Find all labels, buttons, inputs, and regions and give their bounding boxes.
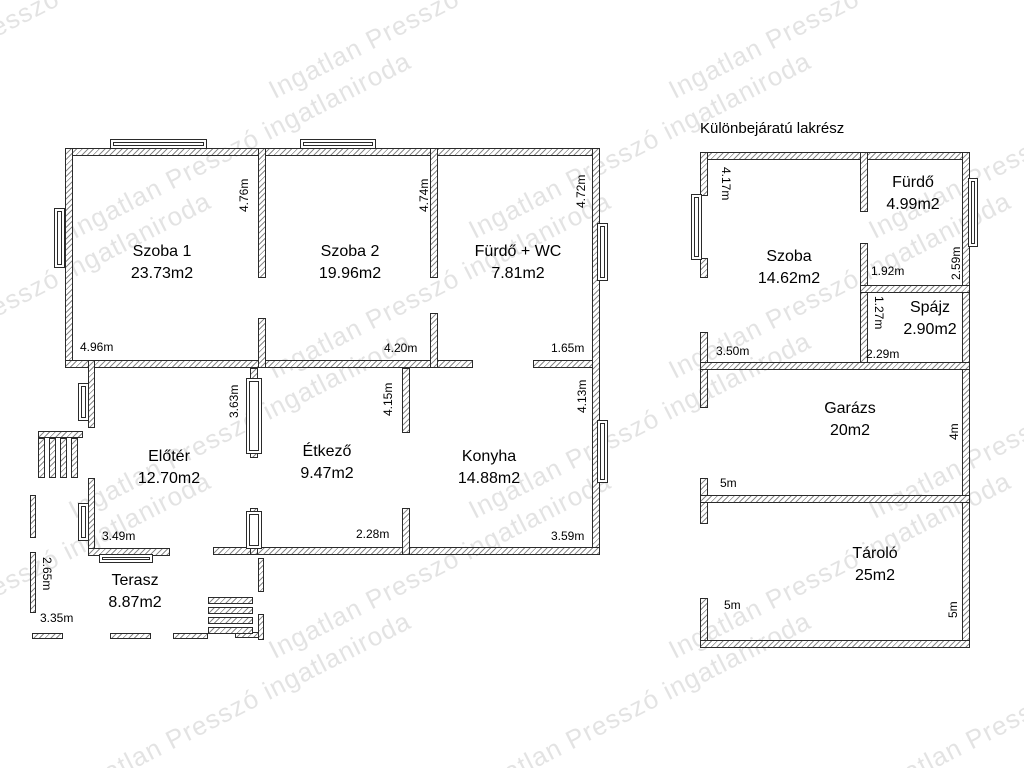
wall-etkezo-konyha-upper: [402, 368, 410, 433]
entry-stairs-cap: [38, 431, 83, 438]
dim-label: 4.20m: [384, 341, 417, 355]
room-name: Garázs: [770, 398, 930, 420]
room-name: Szoba: [709, 246, 869, 268]
window-furdowc-right: [597, 223, 608, 281]
wall-furdo-spajz: [860, 285, 970, 293]
entry-stairs-step: [60, 438, 67, 478]
room-label-annex-furdo: Fürdő 4.99m2: [833, 172, 993, 215]
room-name: Konyha: [409, 446, 569, 468]
terasz-edge-bottom: [110, 633, 151, 639]
room-label-terasz: Terasz 8.87m2: [55, 570, 215, 613]
terasz-stairs-step: [208, 627, 253, 634]
room-label-etkezo: Étkező 9.47m2: [247, 441, 407, 484]
terasz-edge-left-lower: [30, 552, 36, 613]
dim-label: 4.72m: [574, 175, 588, 208]
wall-eloter-left-upper: [88, 360, 95, 428]
dim-label: 1.27m: [872, 296, 886, 329]
terasz-edge-bottom: [173, 633, 208, 639]
window-szoba1-top: [110, 139, 207, 149]
floor-plan: Ingatlan Presszó ingatlanirodaIngatlan P…: [0, 0, 1024, 768]
annex-title: Különbejáratú lakrész: [700, 120, 844, 137]
dim-label: 3.35m: [40, 611, 73, 625]
window-eloter-left-upper: [78, 383, 89, 421]
room-label-szoba1: Szoba 1 23.73m2: [82, 241, 242, 284]
plan-layer: Különbejáratú lakrész Szoba 1 23.73m2 Sz…: [0, 0, 1024, 768]
dim-label: 1.65m: [551, 341, 584, 355]
dim-label: 3.49m: [102, 529, 135, 543]
window-etkezo-wall-lower: [246, 511, 262, 549]
wall-szoba1-szoba2-upper: [258, 148, 266, 278]
room-area: 14.62m2: [709, 268, 869, 290]
wall-szoba2-furdo-lower: [430, 313, 438, 368]
window-annex-szoba-left: [691, 194, 702, 260]
dim-label: 5m: [720, 476, 737, 490]
wall-main-top: [65, 148, 600, 156]
wall-main-right: [592, 148, 600, 555]
dim-label: 4.17m: [719, 167, 733, 200]
room-label-garazs: Garázs 20m2: [770, 398, 930, 441]
dim-label: 2.65m: [40, 557, 54, 590]
dim-label: 4.74m: [417, 179, 431, 212]
room-label-eloter: Előtér 12.70m2: [89, 446, 249, 489]
wall-etkezo-konyha-lower: [402, 508, 410, 555]
window-szoba1-left: [54, 208, 65, 268]
wall-annex-left-a: [700, 152, 708, 196]
room-area: 23.73m2: [82, 263, 242, 285]
entry-stairs-step: [49, 438, 56, 478]
wall-annex-left-c: [700, 332, 708, 408]
room-area: 25m2: [795, 565, 955, 587]
room-name: Előtér: [89, 446, 249, 468]
wall-annex-left-b: [700, 258, 708, 278]
wall-main-left-upper: [65, 148, 73, 368]
entry-stairs-step: [38, 438, 45, 478]
dim-label: 3.50m: [716, 344, 749, 358]
room-name: Fürdő + WC: [438, 241, 598, 263]
dim-label: 2.59m: [949, 247, 963, 280]
wall-annex-divider-garazs: [700, 362, 970, 370]
wall-main-middle-b: [533, 360, 600, 368]
dim-label: 4.13m: [575, 380, 589, 413]
room-area: 7.81m2: [438, 263, 598, 285]
room-label-konyha: Konyha 14.88m2: [409, 446, 569, 489]
dim-label: 4.15m: [381, 383, 395, 416]
room-label-szoba2: Szoba 2 19.96m2: [270, 241, 430, 284]
dim-label: 5m: [946, 601, 960, 618]
dim-label: 4.96m: [80, 340, 113, 354]
dim-label: 3.63m: [227, 385, 241, 418]
entry-stairs-step: [71, 438, 78, 478]
window-szoba2-top: [300, 139, 376, 149]
terasz-stairs-step: [208, 617, 253, 624]
dim-label: 4m: [947, 423, 961, 440]
room-name: Terasz: [55, 570, 215, 592]
wall-eloter-left-lower: [88, 478, 95, 556]
wall-garazs-tarolo: [700, 495, 970, 503]
window-eloter-bottom: [99, 554, 153, 563]
room-area: 14.88m2: [409, 468, 569, 490]
window-konyha-right: [597, 420, 608, 483]
room-area: 9.47m2: [247, 463, 407, 485]
dim-label: 5m: [724, 598, 741, 612]
terasz-edge-bottom: [32, 633, 63, 639]
room-name: Tároló: [795, 543, 955, 565]
room-label-furdo-wc: Fürdő + WC 7.81m2: [438, 241, 598, 284]
dim-label: 4.76m: [237, 179, 251, 212]
room-area: 12.70m2: [89, 468, 249, 490]
room-area: 19.96m2: [270, 263, 430, 285]
room-name: Fürdő: [833, 172, 993, 194]
room-label-annex-szoba: Szoba 14.62m2: [709, 246, 869, 289]
terasz-edge-right-upper: [258, 558, 264, 592]
wall-annex-bottom: [700, 640, 970, 648]
terasz-edge-right-lower: [258, 614, 264, 640]
wall-szoba2-furdo-upper: [430, 148, 438, 278]
room-name: Szoba 2: [270, 241, 430, 263]
wall-annex-top: [700, 152, 970, 160]
room-name: Szoba 1: [82, 241, 242, 263]
wall-szoba1-szoba2-lower: [258, 318, 266, 368]
window-eloter-left-lower: [78, 503, 89, 541]
dim-label: 1.92m: [871, 264, 904, 278]
dim-label: 2.29m: [866, 347, 899, 361]
room-area: 8.87m2: [55, 592, 215, 614]
dim-label: 3.59m: [551, 529, 584, 543]
terasz-edge-left-upper: [30, 495, 36, 538]
room-area: 20m2: [770, 420, 930, 442]
room-label-tarolo: Tároló 25m2: [795, 543, 955, 586]
dim-label: 2.28m: [356, 527, 389, 541]
wall-main-middle-a: [65, 360, 473, 368]
room-area: 4.99m2: [833, 194, 993, 216]
room-name: Étkező: [247, 441, 407, 463]
